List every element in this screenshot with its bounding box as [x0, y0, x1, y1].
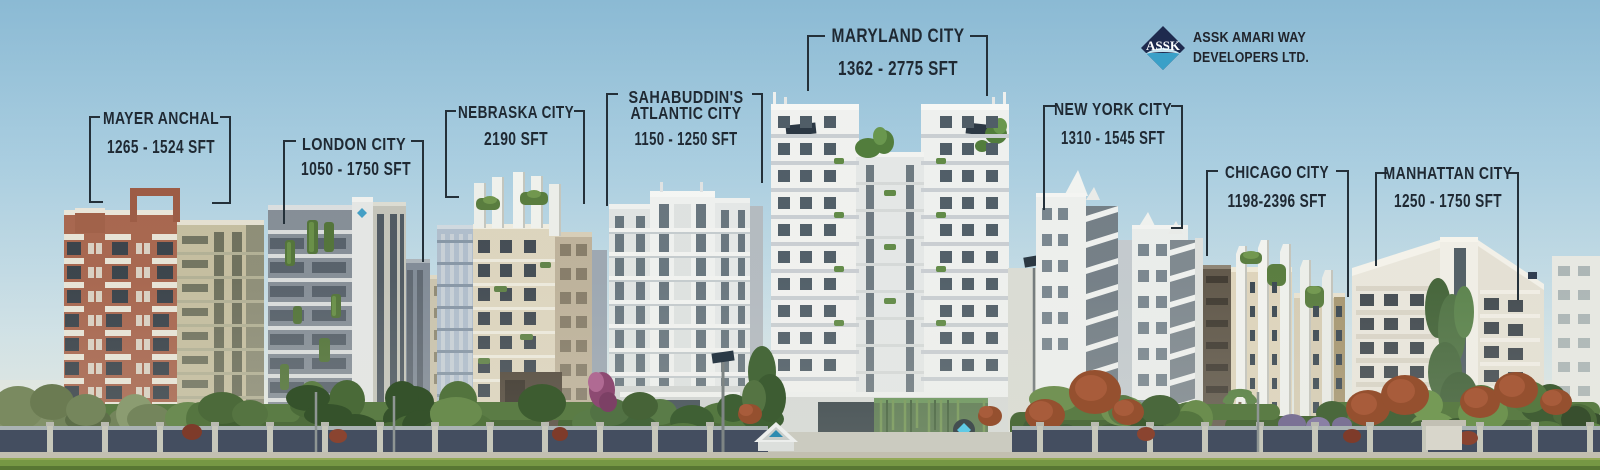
svg-text:ASSK AMARI WAY: ASSK AMARI WAY [1193, 30, 1306, 46]
svg-text:1265 - 1524 SFT: 1265 - 1524 SFT [107, 137, 215, 157]
svg-text:NEBRASKA CITY: NEBRASKA CITY [458, 102, 574, 122]
svg-text:NEW YORK CITY: NEW YORK CITY [1054, 99, 1172, 119]
svg-text:1362 - 2775 SFT: 1362 - 2775 SFT [838, 58, 958, 80]
svg-text:ASSK: ASSK [1146, 38, 1181, 53]
svg-text:1198-2396 SFT: 1198-2396 SFT [1228, 191, 1327, 211]
svg-text:1310 - 1545 SFT: 1310 - 1545 SFT [1061, 128, 1165, 148]
svg-text:1050 - 1750 SFT: 1050 - 1750 SFT [301, 159, 411, 179]
svg-text:1150 - 1250 SFT: 1150 - 1250 SFT [635, 129, 738, 149]
svg-text:MANHATTAN CITY: MANHATTAN CITY [1384, 163, 1513, 183]
svg-text:MAYER ANCHAL: MAYER ANCHAL [103, 108, 219, 128]
svg-text:1250 - 1750 SFT: 1250 - 1750 SFT [1394, 191, 1502, 211]
svg-text:MARYLAND CITY: MARYLAND CITY [832, 26, 965, 47]
svg-text:2190 SFT: 2190 SFT [484, 129, 548, 149]
svg-text:LONDON CITY: LONDON CITY [302, 134, 406, 154]
svg-text:CHICAGO CITY: CHICAGO CITY [1225, 162, 1329, 182]
svg-text:DEVELOPERS LTD.: DEVELOPERS LTD. [1193, 50, 1309, 66]
svg-text:ATLANTIC CITY: ATLANTIC CITY [631, 103, 742, 123]
